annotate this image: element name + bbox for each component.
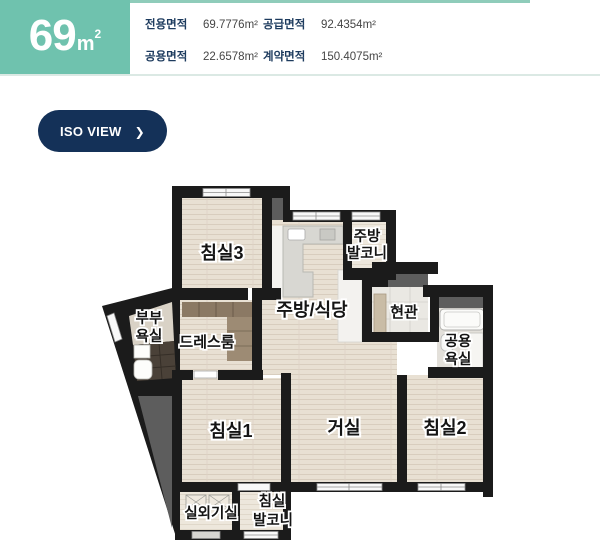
area-label: 공급면적 (263, 18, 311, 32)
chevron-right-icon: ❯ (135, 125, 145, 139)
area-label: 전용면적 (145, 18, 193, 32)
area-label: 계약면적 (263, 50, 311, 64)
unit-size-badge: 69m2 (0, 0, 130, 74)
area-value: 69.7776m² (203, 18, 258, 32)
area-value: 92.4354m² (321, 18, 376, 32)
area-label: 공용면적 (145, 50, 193, 64)
room-label-bedroom2: 침실2 (423, 418, 466, 438)
iso-view-button[interactable]: ISO VIEW ❯ (38, 110, 167, 152)
room-label-bedroom1: 침실1 (209, 421, 252, 441)
unit-size-superscript: 2 (95, 27, 102, 41)
area-row-exclusive: 전용면적 69.7776m² (145, 18, 263, 43)
area-row-supply: 공급면적 92.4354m² (263, 18, 530, 43)
wardrobe-top (182, 302, 252, 317)
room-label-living-room: 거실 (327, 418, 360, 438)
dressroom-door (194, 371, 217, 378)
kitchen-stove (320, 229, 335, 240)
floorplan-image: 침실3 주방 발코니 주방/식당 현관 부부 욕실 드레스룸 공용 욕실 침실1… (95, 178, 505, 551)
room-label-master-bath-1: 부부 (136, 310, 163, 327)
area-row-contract: 계약면적 150.4075m² (263, 50, 530, 75)
room-label-bedroom-balcony-2: 발코니 (253, 512, 293, 529)
room-label-bedroom3: 침실3 (200, 243, 243, 263)
iso-view-label: ISO VIEW (60, 124, 122, 139)
area-value: 150.4075m² (321, 50, 382, 64)
unit-size-unit: m (77, 33, 95, 56)
shoe-closet (374, 294, 386, 334)
kitchen-sink (288, 229, 305, 240)
room-label-entrance: 현관 (390, 304, 418, 321)
area-table: 전용면적 69.7776m² 공급면적 92.4354m² 공용면적 22.65… (130, 0, 530, 74)
floorplan-svg: 침실3 주방 발코니 주방/식당 현관 부부 욕실 드레스룸 공용 욕실 침실1… (95, 178, 505, 551)
room-label-kitchen-balcony-2: 발코니 (347, 245, 387, 262)
master-bath-toilet (134, 360, 152, 379)
room-label-dressroom: 드레스룸 (179, 334, 234, 351)
unit-size-number: 69 (29, 14, 76, 58)
header-divider (0, 74, 600, 76)
master-bath-sink (134, 345, 150, 358)
room-label-kitchen-dining: 주방/식당 (276, 300, 348, 320)
room-label-master-bath-2: 욕실 (136, 328, 163, 345)
room-label-common-bath-2: 욕실 (445, 351, 472, 368)
area-row-common: 공용면적 22.6578m² (145, 50, 263, 75)
area-value: 22.6578m² (203, 50, 258, 64)
room-label-kitchen-balcony-1: 주방 (354, 227, 381, 245)
room-label-common-bath-1: 공용 (445, 333, 472, 350)
room-label-outdoor-unit: 실외기실 (184, 504, 237, 522)
room-label-bedroom-balcony-1: 침실 (259, 493, 286, 510)
